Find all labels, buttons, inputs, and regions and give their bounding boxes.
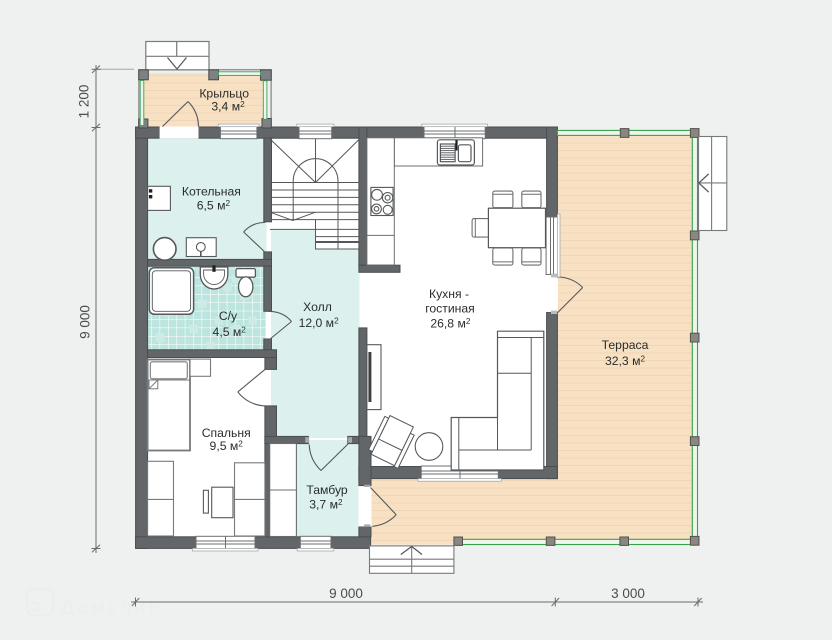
svg-text:Тамбур: Тамбур <box>306 483 348 497</box>
svg-text:Крыльцо: Крыльцо <box>199 87 249 101</box>
svg-text:3,7 м2: 3,7 м2 <box>309 498 343 512</box>
svg-text:Котельная: Котельная <box>182 184 241 198</box>
svg-text:9 000: 9 000 <box>78 305 93 339</box>
svg-text:1 200: 1 200 <box>77 85 92 119</box>
svg-text:Кухня -: Кухня - <box>429 287 469 301</box>
svg-text:6,5 м2: 6,5 м2 <box>197 198 231 212</box>
svg-text:12,0 м2: 12,0 м2 <box>299 316 340 330</box>
svg-text:32,3 м2: 32,3 м2 <box>605 354 646 368</box>
svg-text:Холл: Холл <box>303 300 332 314</box>
svg-text:9 000: 9 000 <box>329 586 363 601</box>
svg-text:Спальня: Спальня <box>202 426 251 440</box>
svg-text:3,4 м2: 3,4 м2 <box>211 99 245 113</box>
svg-text:гостиная: гостиная <box>425 302 475 316</box>
svg-text:9,5 м2: 9,5 м2 <box>210 439 244 453</box>
svg-text:Терраса: Терраса <box>602 338 649 352</box>
svg-text:4,5 м2: 4,5 м2 <box>213 325 247 339</box>
svg-text:26,8 м2: 26,8 м2 <box>430 317 471 331</box>
svg-text:3 000: 3 000 <box>611 586 645 601</box>
svg-text:Домклик: Домклик <box>61 598 161 619</box>
svg-text:С/у: С/у <box>219 309 238 323</box>
